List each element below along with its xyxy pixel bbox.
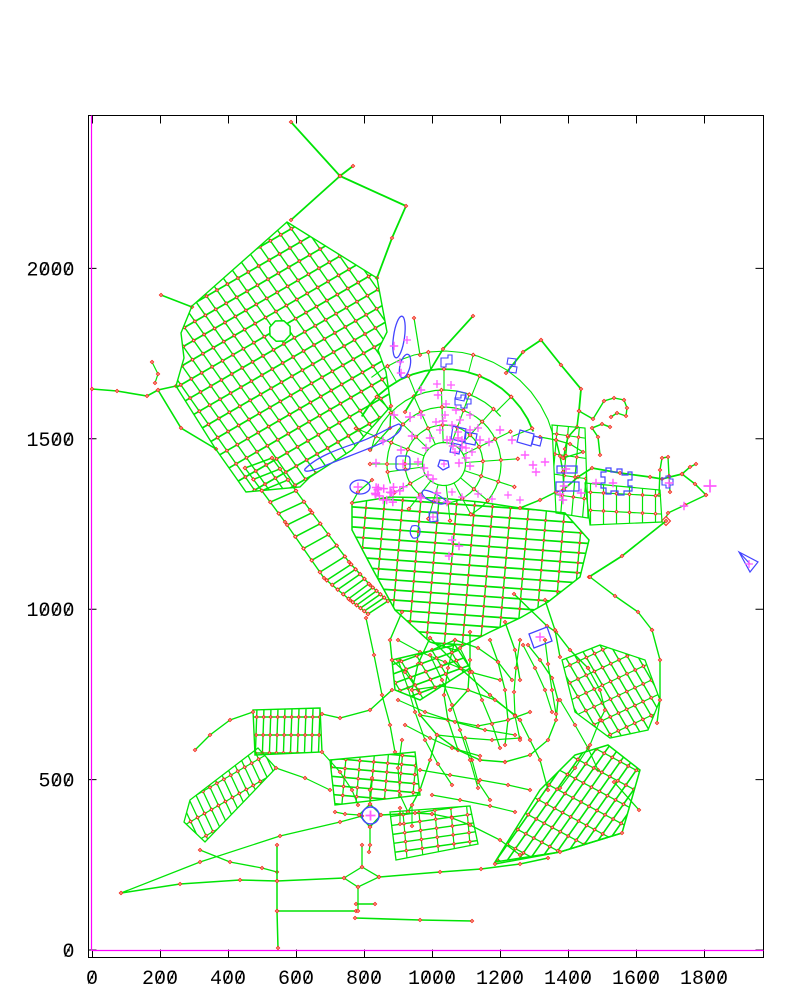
svg-text:600: 600	[278, 968, 314, 991]
svg-text:200: 200	[142, 968, 178, 991]
svg-text:0: 0	[63, 941, 75, 964]
svg-text:500: 500	[39, 771, 75, 794]
svg-text:400: 400	[210, 968, 246, 991]
svg-text:0: 0	[86, 968, 98, 991]
svg-text:800: 800	[346, 968, 382, 991]
